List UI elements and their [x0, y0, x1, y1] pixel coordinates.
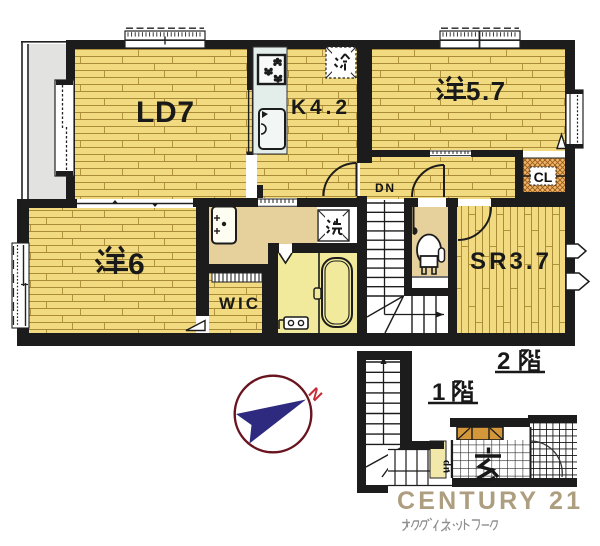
svg-text:DN: DN [375, 181, 394, 195]
svg-text:CENTURY 21: CENTURY 21 [397, 487, 580, 515]
svg-text:CL: CL [534, 169, 553, 185]
svg-text:K4.2: K4.2 [291, 96, 347, 119]
svg-text:6: 6 [128, 248, 145, 281]
svg-text:WIC: WIC [219, 294, 258, 313]
svg-text:LD7: LD7 [136, 96, 194, 129]
svg-text:5.7: 5.7 [466, 76, 507, 106]
svg-text:up: up [441, 460, 452, 473]
svg-text:SR3.7: SR3.7 [470, 248, 549, 275]
